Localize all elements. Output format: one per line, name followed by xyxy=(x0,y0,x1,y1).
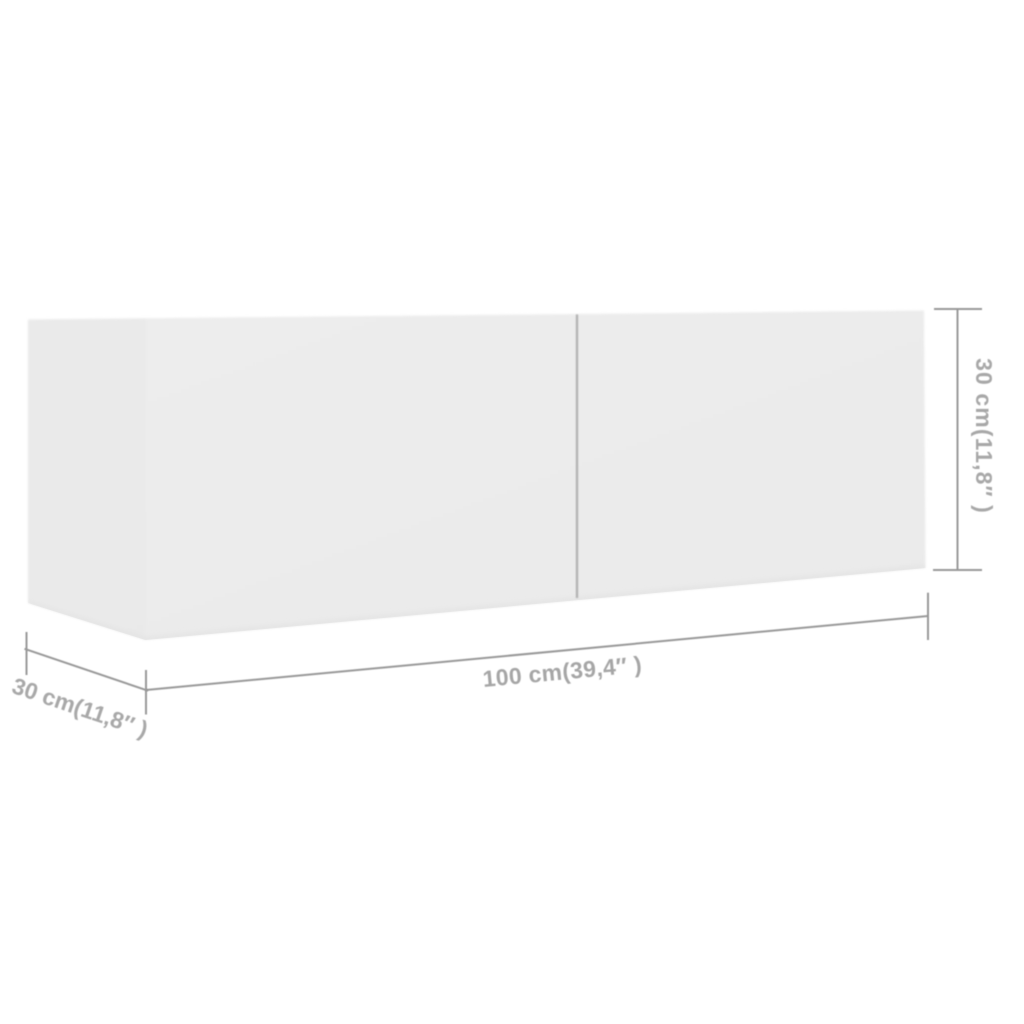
svg-text:30 cm(11,8″ ): 30 cm(11,8″ ) xyxy=(971,358,997,514)
